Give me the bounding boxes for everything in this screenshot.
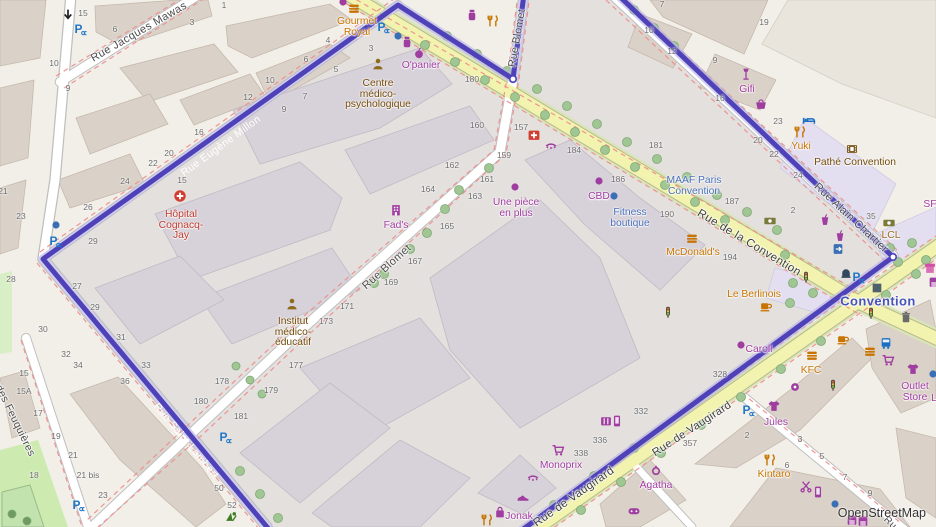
house-number: 159	[497, 150, 511, 160]
dot-icon	[50, 219, 63, 232]
phone-icon	[611, 415, 624, 428]
house-number: 36	[120, 376, 129, 386]
jar-icon	[466, 9, 479, 22]
poi-label: boutique	[610, 218, 650, 229]
poi-label: en plus	[499, 208, 532, 219]
house-number: 4	[326, 35, 331, 45]
poi-label: O'panier	[402, 61, 441, 72]
house-number: 328	[713, 369, 727, 379]
house-number: 178	[215, 376, 229, 386]
poi-label: KFC	[801, 366, 822, 377]
house-number: 16	[715, 93, 724, 103]
house-number: 29	[90, 302, 99, 312]
parking-icon: P	[72, 499, 85, 512]
house-number: 34	[73, 360, 82, 370]
house-number: 21	[0, 186, 8, 196]
poi-label: Kintaro	[758, 470, 791, 481]
banknote-icon	[883, 217, 896, 230]
trash-icon	[900, 311, 913, 324]
eyelash-icon	[545, 140, 558, 153]
poi-label: McDonald's	[666, 248, 719, 259]
dot-icon	[927, 368, 936, 381]
arrow-icon	[62, 9, 75, 22]
house-number: 179	[264, 385, 278, 395]
house-number: 15	[177, 175, 186, 185]
house-number: 3	[190, 17, 195, 27]
house-number: 35	[866, 211, 875, 221]
house-number: 7	[843, 472, 848, 482]
house-number: 5	[820, 451, 825, 461]
house-number: 161	[480, 174, 494, 184]
attribution-link[interactable]: OpenStreetMap	[838, 506, 926, 520]
poi-label: Yuki	[791, 142, 810, 153]
parking-icon: P	[852, 271, 865, 284]
poi-label: Pathé Convention	[814, 158, 896, 169]
tshirt-icon	[907, 363, 920, 376]
redcross-icon	[528, 129, 541, 142]
house-number: 357	[683, 438, 697, 448]
house-number: 3	[369, 43, 374, 53]
house-number: 7	[660, 0, 665, 9]
parking-icon: P	[219, 431, 232, 444]
house-number: 20	[753, 135, 762, 145]
subway-icon	[871, 282, 884, 295]
person-icon	[286, 298, 299, 311]
house-number: 17	[33, 408, 42, 418]
cup-icon	[760, 300, 773, 313]
banknote-icon	[764, 215, 777, 228]
house-number: 180	[194, 396, 208, 406]
house-number: 9	[66, 83, 71, 93]
house-number: 23	[16, 211, 25, 221]
cutlery-icon	[764, 454, 777, 467]
house-number: 26	[83, 202, 92, 212]
house-number: 177	[289, 360, 303, 370]
awning-icon	[924, 262, 936, 275]
dot-icon	[593, 175, 606, 188]
parking-icon: P	[74, 23, 87, 36]
house-number: 162	[445, 160, 459, 170]
house-number: 181	[649, 140, 663, 150]
parking-icon: P	[49, 235, 62, 248]
poi-label: Caroll	[746, 345, 773, 356]
house-number: 6	[113, 24, 118, 34]
shopfront-icon	[928, 276, 936, 289]
house-number: 23	[98, 490, 107, 500]
poi-label: Store	[903, 392, 928, 403]
house-number: 22	[148, 158, 157, 168]
cart-icon	[882, 354, 895, 367]
eyelash-icon	[527, 472, 540, 485]
house-number: 28	[6, 274, 15, 284]
cup-icon	[837, 333, 850, 346]
house-number: 5	[334, 64, 339, 74]
poi-label: L	[931, 394, 936, 405]
house-number: 15A	[16, 386, 31, 396]
route-node	[890, 254, 896, 260]
house-number: 2	[791, 205, 796, 215]
poi-label: Gifi	[739, 85, 754, 96]
house-number: 190	[660, 209, 674, 219]
house-number: 22	[769, 149, 778, 159]
controller-icon	[628, 505, 641, 518]
donut-icon	[789, 381, 802, 394]
house-number: 3	[798, 434, 803, 444]
house-number: 173	[319, 316, 333, 326]
poi-label: Royal	[344, 27, 370, 38]
drink-icon	[834, 230, 847, 243]
house-number: 21 bis	[77, 470, 100, 480]
playground-icon	[225, 510, 238, 523]
house-number: 23	[773, 116, 782, 126]
parking-icon: P	[742, 404, 755, 417]
house-number: 181	[234, 411, 248, 421]
poi-label: Agatha	[640, 481, 673, 492]
poi-label: LCL	[882, 231, 901, 242]
house-number: 50	[214, 483, 223, 493]
poi-label: psychologique	[345, 100, 411, 111]
house-number: 157	[514, 122, 528, 132]
apple-icon	[413, 47, 426, 60]
house-number: 10	[644, 25, 653, 35]
poi-label: Jules	[764, 418, 788, 429]
house-number: 194	[723, 252, 737, 262]
house-number: 9	[868, 488, 873, 498]
poi-label: SF	[923, 200, 936, 211]
house-number: 187	[725, 196, 739, 206]
house-number: 24	[120, 176, 129, 186]
house-number: 30	[38, 324, 47, 334]
cutlery-icon	[487, 15, 500, 28]
person-icon	[372, 58, 385, 71]
house-number: 19	[51, 431, 60, 441]
burger-icon	[864, 346, 877, 359]
house-number: 10	[49, 58, 58, 68]
house-number: 167	[408, 256, 422, 266]
house-number: 9	[713, 55, 718, 65]
burger-icon	[686, 233, 699, 246]
house-number: 332	[634, 406, 648, 416]
house-number: 27	[72, 281, 81, 291]
house-number: 7	[303, 91, 308, 101]
house-number: 12	[243, 92, 252, 102]
traffic-icon	[800, 271, 813, 284]
house-number: 6	[304, 54, 309, 64]
traffic-icon	[827, 379, 840, 392]
house-number: 15	[19, 368, 28, 378]
house-number: 336	[593, 435, 607, 445]
house-number: 33	[141, 360, 150, 370]
house-number: 160	[470, 120, 484, 130]
dot-icon	[509, 181, 522, 194]
house-number: 180	[465, 74, 479, 84]
house-number: 163	[468, 191, 482, 201]
poi-label: Fad's	[384, 221, 409, 232]
house-number: 12	[667, 46, 676, 56]
poi-label: éducatif	[275, 338, 311, 349]
lamp-icon	[740, 68, 753, 81]
house-number: 19	[759, 17, 768, 27]
poi-label: Jay	[173, 231, 189, 242]
poi-label: Jonak	[505, 512, 532, 523]
map-viewport[interactable]: Rue Jacques MawasRue Eugène MillonRue Sa…	[0, 0, 936, 527]
basket-icon	[755, 98, 768, 111]
house-number: 16	[194, 127, 203, 137]
building-icon	[390, 204, 403, 217]
cart-icon	[552, 444, 565, 457]
house-number: 31	[116, 332, 125, 342]
house-number: 15	[78, 8, 87, 18]
house-number: 21	[68, 450, 77, 460]
house-number: 20	[164, 148, 173, 158]
house-number: 184	[567, 145, 581, 155]
phone-icon	[812, 486, 825, 499]
cutlery-icon	[481, 514, 494, 527]
ring-icon	[650, 464, 663, 477]
drink-icon	[819, 214, 832, 227]
house-number: 171	[340, 301, 354, 311]
house-number: 10	[265, 75, 274, 85]
traffic-icon	[865, 307, 878, 320]
hospital-icon	[174, 190, 187, 203]
house-number: 2	[745, 430, 750, 440]
dot-icon	[608, 190, 621, 203]
dot-icon	[337, 0, 350, 9]
house-number: 52	[227, 500, 236, 510]
house-number: 32	[61, 349, 70, 359]
house-number: 169	[384, 277, 398, 287]
bus-icon	[880, 337, 893, 350]
cutlery-icon	[794, 126, 807, 139]
poi-label: Monoprix	[540, 461, 582, 472]
traffic-icon	[662, 306, 675, 319]
house-number: 24	[793, 170, 802, 180]
dot-icon	[392, 30, 405, 43]
house-number: 1	[222, 0, 227, 10]
tshirt-icon	[768, 400, 781, 413]
poi-label: Convention	[668, 186, 720, 197]
poi-label: Le Berlinois	[727, 290, 781, 301]
shoe-icon	[517, 491, 530, 504]
house-number: 18	[29, 470, 38, 480]
route-node	[510, 76, 516, 82]
burger-icon	[806, 350, 819, 363]
station-label: Convention	[840, 294, 916, 309]
parking-icon: P	[377, 21, 390, 34]
house-number: 29	[88, 236, 97, 246]
house-number: 338	[574, 448, 588, 458]
door-icon	[832, 243, 845, 256]
house-number: 165	[440, 221, 454, 231]
film-icon	[846, 143, 859, 156]
house-number: 9	[282, 104, 287, 114]
house-number: 186	[611, 174, 625, 184]
house-number: 164	[421, 184, 435, 194]
